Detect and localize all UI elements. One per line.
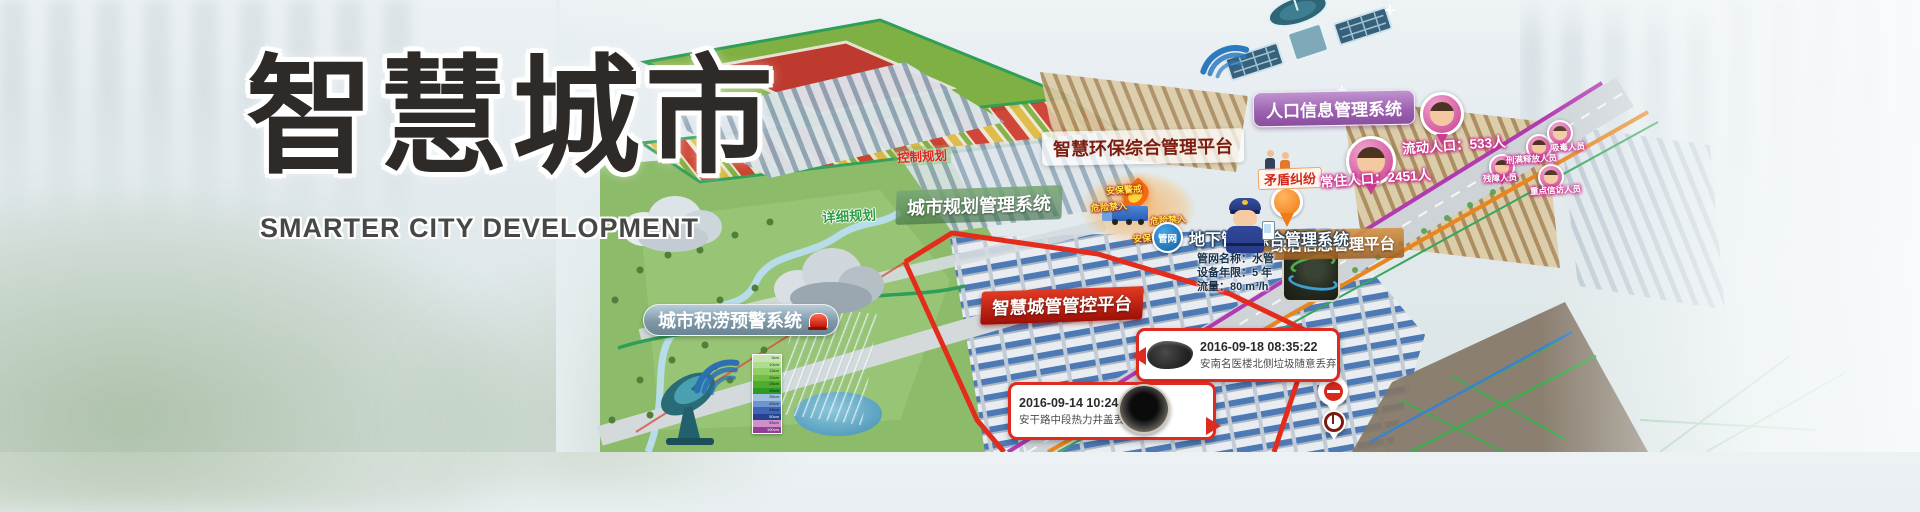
detailed-planning-tag: 详细规划 <box>822 204 877 227</box>
control-planning-tag: 控制规划 <box>893 144 952 166</box>
banner-title: 智慧城市 <box>246 48 778 189</box>
warn-top: 安保警戒 <box>1106 182 1143 197</box>
tag-label-disabled: 残障人员 <box>1483 171 1518 185</box>
garbage-photo <box>1147 341 1193 369</box>
label-flood-warning-system: 城市积涝预警系统 <box>643 304 839 336</box>
police-face <box>1233 210 1257 227</box>
callout-garbage-desc: 安南名医楼北侧垃圾随意丢弃 <box>1200 356 1337 371</box>
siren-icon <box>809 313 828 328</box>
police-phone <box>1262 221 1275 240</box>
policeman-figure <box>1221 193 1269 257</box>
dispute-pin-tail <box>1280 213 1294 227</box>
callout-garbage-time: 2016-09-18 08:35:22 <box>1200 340 1337 354</box>
callout-manhole: 2016-09-14 10:24:15 安干路中段热力井盖丢失 <box>1008 382 1216 440</box>
far-road-grid <box>1640 356 1846 452</box>
legend-row: 100cm <box>753 427 781 434</box>
satellite-signal-icon <box>1198 34 1254 86</box>
vehicle-map-pin <box>1322 410 1346 440</box>
pipe-age: 设备年限：5 年 <box>1197 266 1274 280</box>
label-planning-system: 城市规划管理系统 <box>895 185 1062 225</box>
manhole-photo <box>1118 384 1170 434</box>
banner-subtitle: SMARTER CITY DEVELOPMENT <box>260 213 699 244</box>
pipe-info-panel: 管网名称：水管 设备年限：5 年 流量：80 m³/h <box>1197 252 1274 294</box>
dish-signal-icon <box>690 350 746 402</box>
flood-label-text: 城市积涝预警系统 <box>658 307 802 333</box>
tag-label-drug: 吸毒人员 <box>1551 140 1586 154</box>
pipe-flow: 流量：80 m³/h <box>1197 280 1274 294</box>
label-env-platform: 智慧环保综合管理平台 <box>1042 128 1245 166</box>
no-entry-left: 危险禁入 <box>1091 199 1128 214</box>
label-population-system: 人口信息管理系统 <box>1253 90 1416 128</box>
callout-garbage: 2016-09-18 08:35:22 安南名医楼北侧垃圾随意丢弃 <box>1136 328 1340 382</box>
pipe-badge-icon: 管网 <box>1152 222 1183 253</box>
label-city-mgmt-platform: 智慧城管管控平台 <box>980 286 1144 325</box>
rainfall-legend: 5cm 10cm 15cm 20cm 25cm 30cm 35cm 40cm 4… <box>752 354 782 434</box>
police-uniform <box>1226 226 1264 253</box>
dispute-label: 矛盾纠纷 <box>1258 167 1323 190</box>
